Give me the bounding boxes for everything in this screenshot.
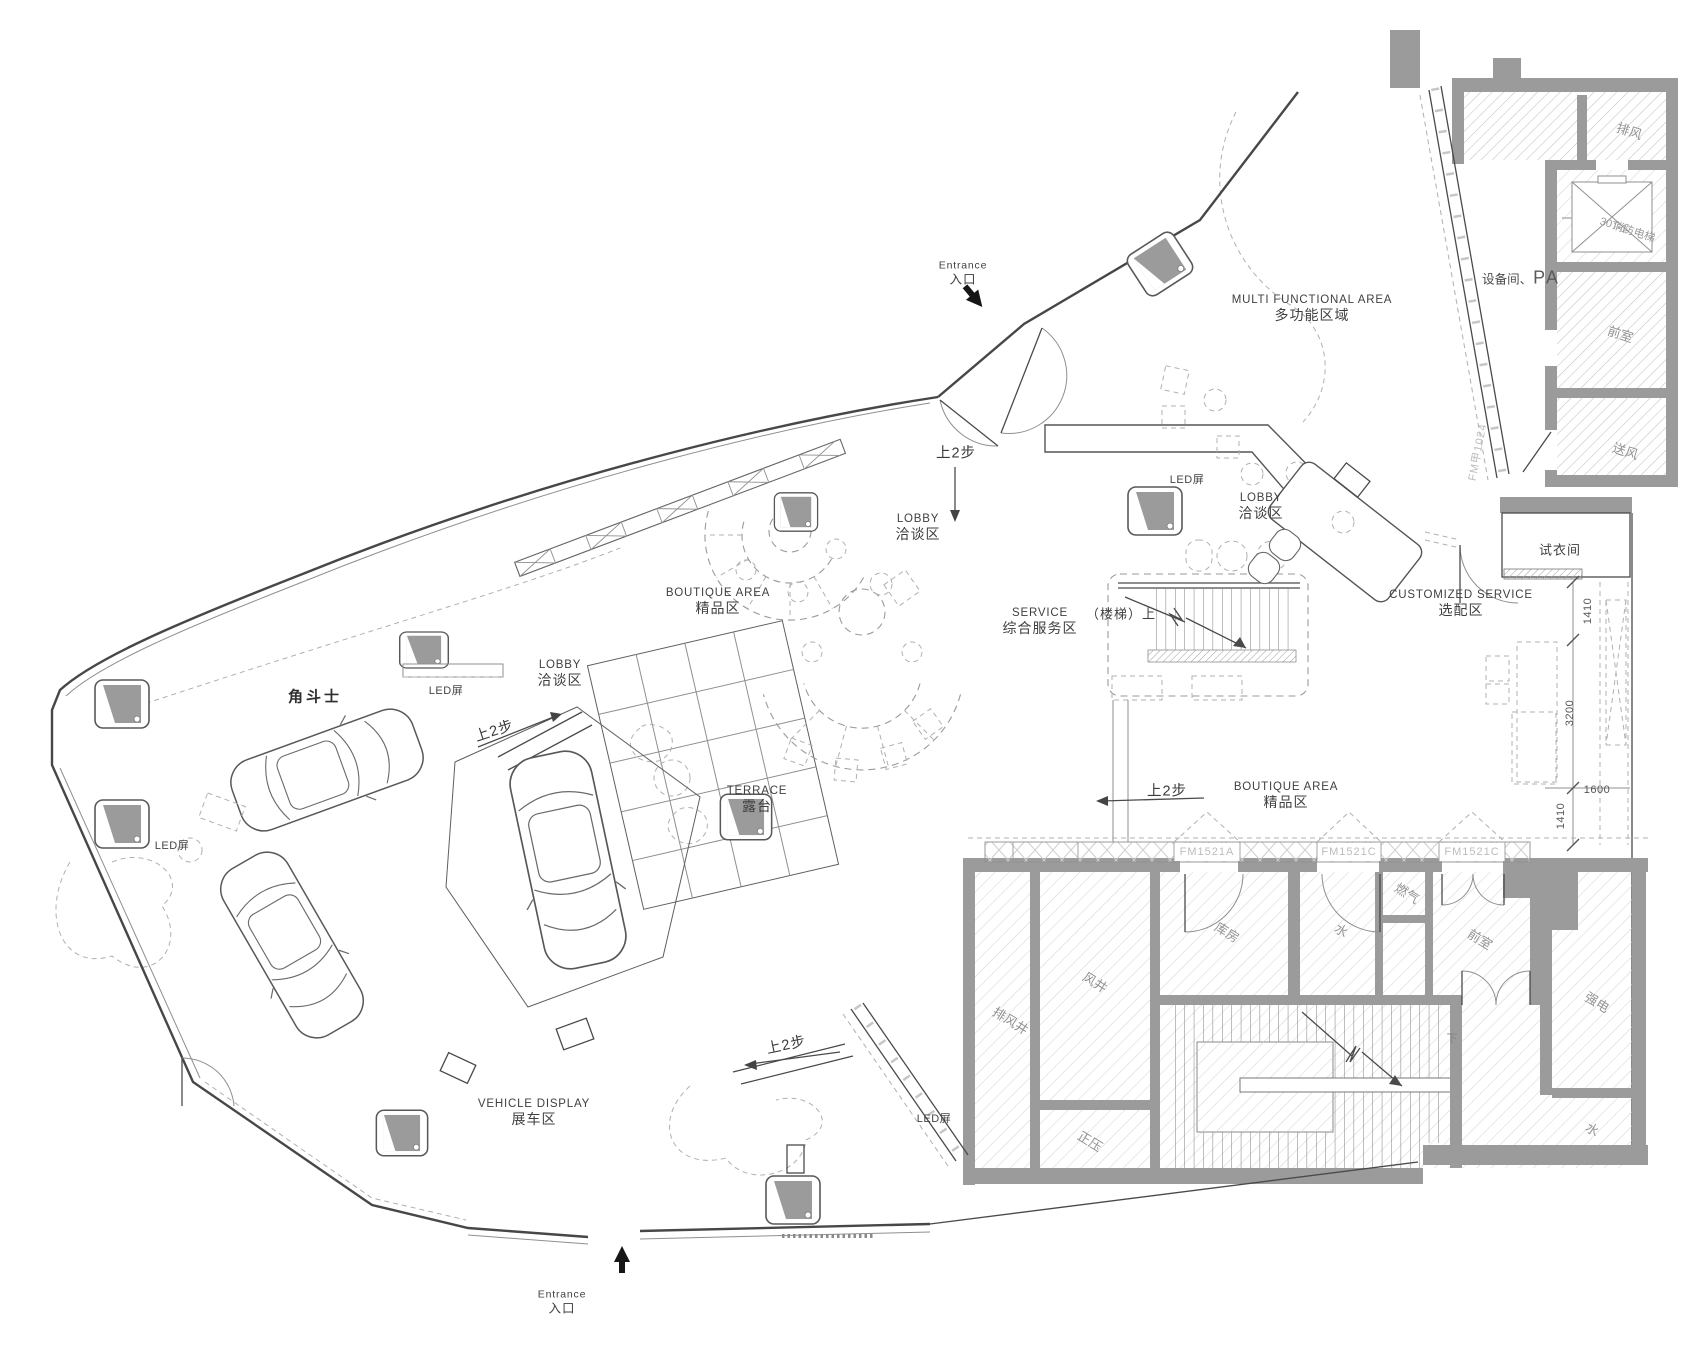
display-fixtures-dashed [1486, 600, 1626, 784]
door-code-fm1521c-2: FM1521C [1444, 846, 1499, 858]
stair-down-label: 下 [1447, 1030, 1458, 1046]
service-core [843, 812, 1648, 1185]
area-label-terrace: TERRACE露台 [727, 784, 788, 816]
entrance-label-top: Entrance入口 [939, 260, 987, 289]
led-label-west: LED屏 [429, 682, 463, 698]
area-label-vehicle-display: VEHICLE DISPLAY展车区 [478, 1097, 590, 1129]
area-label-boutique-west: BOUTIQUE AREA精品区 [666, 586, 770, 618]
car-model-label: 角斗士 [288, 686, 342, 707]
area-label-customized: CUSTOMIZED SERVICE选配区 [1389, 588, 1533, 620]
service-desk [764, 573, 961, 782]
led-label-east: LED屏 [1170, 471, 1204, 487]
area-label-multi-functional: MULTI FUNCTIONAL AREA多功能区域 [1232, 293, 1393, 325]
area-label-service: SERVICE综合服务区 [1003, 606, 1078, 638]
area-label-lobby-east: LOBBY洽谈区 [1239, 491, 1284, 523]
led-label-left: LED屏 [155, 837, 189, 853]
door-code-fm1521c-1: FM1521C [1321, 846, 1376, 858]
room-label-equipment: 设备间、PA [1482, 268, 1560, 289]
entrance-label-bottom: Entrance入口 [538, 1289, 586, 1318]
area-label-lobby-west: LOBBY洽谈区 [538, 658, 583, 690]
dimension-1410-b: 1410 [1555, 803, 1567, 829]
equipment-core [1390, 30, 1678, 487]
dimension-1600: 1600 [1584, 784, 1610, 796]
steps-label-east: 上2步 [1147, 780, 1187, 801]
steps-label-top: 上2步 [936, 442, 976, 463]
dimension-1410-a: 1410 [1582, 598, 1594, 624]
floor-plan: Entrance入口 MULTI FUNCTIONAL AREA多功能区域 设备… [0, 0, 1700, 1353]
dimension-3200: 3200 [1564, 700, 1576, 726]
led-label-south: LED屏 [917, 1110, 951, 1126]
stairs-up-label: （楼梯）上 [1086, 604, 1156, 623]
floor-plan-drawing [0, 0, 1700, 1353]
room-label-fitting: 试衣间 [1539, 540, 1581, 559]
area-label-boutique-east: BOUTIQUE AREA精品区 [1234, 780, 1338, 812]
door-code-fm1521a: FM1521A [1180, 846, 1235, 858]
area-label-lobby-center: LOBBY洽谈区 [896, 512, 941, 544]
